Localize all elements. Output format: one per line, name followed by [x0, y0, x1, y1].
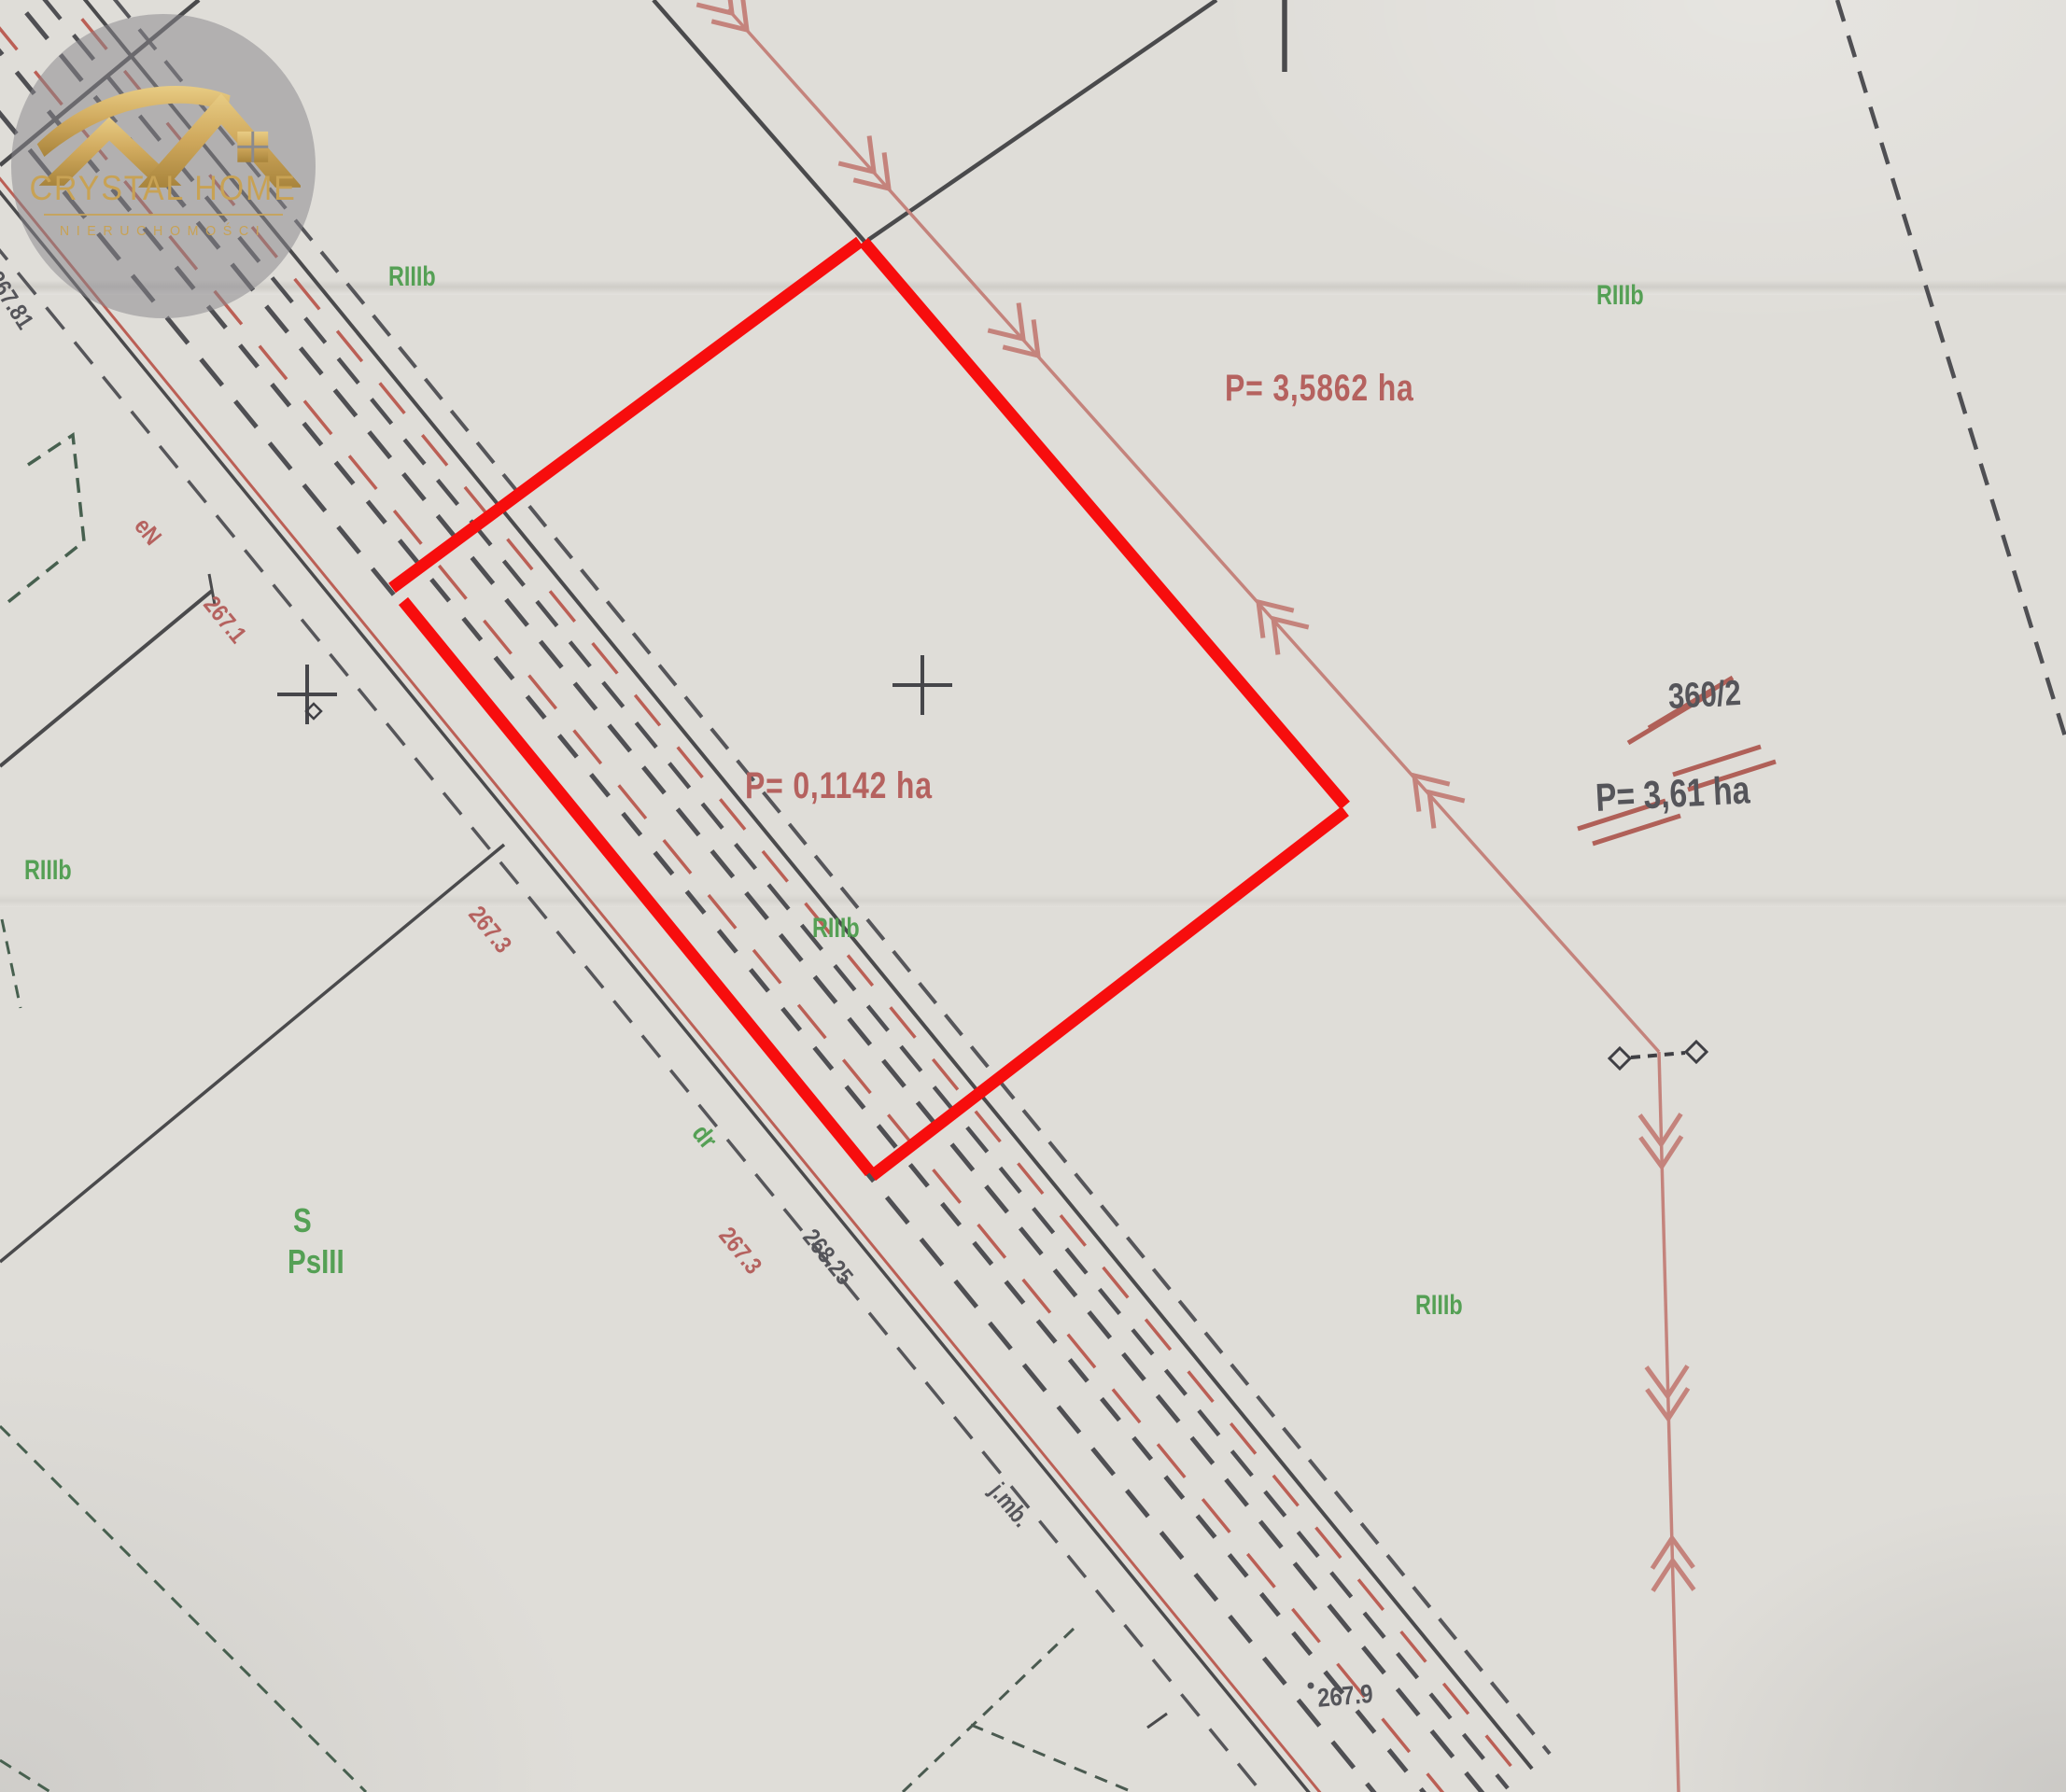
road-edge-tick	[1147, 1714, 1167, 1728]
crossed-parcel-number: 360/2	[1667, 676, 1742, 715]
boundary-line-left-upper	[0, 591, 212, 766]
highlight-edge-bottom-left	[403, 601, 870, 1172]
highlight-edge-top-right	[864, 242, 1345, 805]
grid-cross-right	[892, 655, 952, 715]
boundary-line-left-lower	[0, 845, 504, 1262]
highlight-edge-bottom-right	[872, 811, 1345, 1176]
junction-diamond-left	[1609, 1048, 1630, 1069]
grid-crosses	[277, 655, 952, 724]
pasture-symbol-label: S	[293, 1204, 312, 1238]
soil-label-center: RIIIb	[812, 915, 860, 943]
cadastral-map-scan: CRYSTAL HOME NIERUCHOMOŚCI RIIIb RIIIb R…	[0, 0, 2066, 1792]
soil-label-top-left: RIIIb	[388, 263, 436, 291]
boundary-dashed-bottom-right-branch	[971, 1725, 1132, 1792]
area-label-north-parcel: P= 3,5862 ha	[1225, 370, 1414, 407]
soil-label-bottom-right: RIIIb	[1415, 1292, 1463, 1320]
boundary-dashed-south-west	[0, 1426, 366, 1792]
highlight-edge-top-left	[392, 242, 860, 588]
boundary-dashed-bottom-corner	[0, 1760, 50, 1792]
survey-point-dot	[1308, 1683, 1314, 1689]
soil-label-left-edge: RIIIb	[24, 857, 72, 885]
watermark-logo: CRYSTAL HOME NIERUCHOMOŚCI	[11, 14, 316, 318]
area-label-highlighted-parcel: P= 0,1142 ha	[745, 767, 933, 805]
dashed-boundaries	[0, 0, 2066, 1792]
watermark-brand-subtitle: NIERUCHOMOŚCI	[60, 223, 267, 239]
boundary-dashed-left-polygon	[5, 435, 84, 605]
junction-diamond-right	[1686, 1042, 1707, 1062]
boundary-dashed-left-edge	[2, 919, 21, 1008]
watermark-brand-name: CRYSTAL HOME	[30, 169, 297, 208]
soil-label-top-right: RIIIb	[1596, 282, 1644, 310]
boundary-dashed-bottom-left-branch	[903, 1629, 1074, 1792]
boundary-line-from-corner	[868, 0, 1216, 240]
watermark-divider	[44, 214, 283, 216]
pasture-class-label: PsIII	[288, 1245, 344, 1279]
survey-junction	[306, 704, 1707, 1689]
map-linework	[0, 0, 2066, 1792]
elevation-label-267-9: 267.9	[1316, 1681, 1374, 1712]
flow-line-diagonal	[728, 9, 1659, 1052]
crossed-parcel-area: P= 3,61 ha	[1595, 770, 1750, 818]
boundary-line-to-corner	[654, 0, 866, 244]
boundary-dashed-north-east	[1837, 0, 2066, 739]
grid-cross-left	[277, 665, 337, 724]
